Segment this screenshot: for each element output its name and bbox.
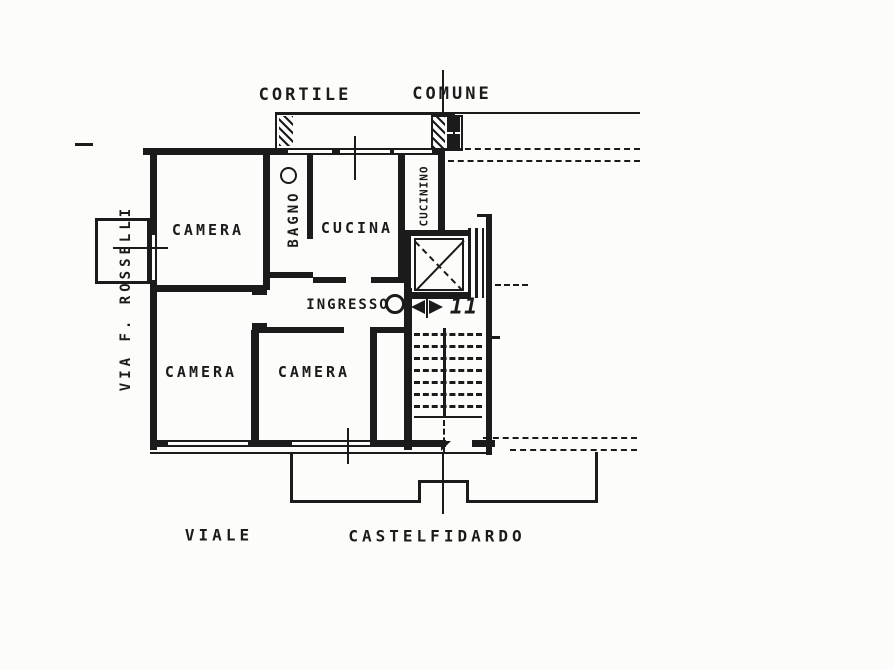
window-top-1 — [288, 148, 332, 155]
street-balcony-left-edge — [290, 452, 293, 503]
window-axis-tick-top — [354, 136, 356, 180]
stair-tread — [414, 369, 482, 372]
street-label-viale: VIALE — [185, 526, 253, 545]
window-top-3 — [394, 148, 432, 155]
window-axis-tick-bottom — [347, 428, 349, 464]
elevator-top-wall — [404, 230, 470, 236]
adjacent-wall-dashed-4 — [510, 449, 637, 451]
street-label-castelfidardo: CASTELFIDARDO — [348, 527, 525, 546]
window-bottom-1 — [168, 440, 248, 447]
room-label-cucinino: CUCININO — [418, 166, 431, 227]
street-label-via-rosselli: VIA F. ROSSELLI — [118, 205, 134, 391]
top-wall-lead-dash — [75, 143, 93, 146]
stair-tread — [414, 345, 482, 348]
wall-camera-bagno — [263, 155, 270, 290]
window-left — [150, 235, 157, 280]
wall-bagno-cucina — [307, 155, 313, 239]
stairwell-right-wall — [486, 215, 492, 455]
entry-arrow-right-icon — [429, 300, 443, 314]
flue-wall — [438, 150, 445, 236]
elevator-left-wall — [404, 230, 411, 299]
courtyard-label-comune: COMUNE — [412, 84, 491, 104]
chimney-hatch — [433, 117, 445, 148]
entry-arrow-left-icon — [411, 300, 425, 314]
room-label-bagno: BAGNO — [286, 190, 302, 247]
wall-camera-nw-bottom — [157, 285, 257, 292]
top-balcony — [275, 112, 455, 150]
stair-center-rail — [443, 328, 446, 418]
bottom-sill-line — [150, 452, 490, 454]
window-bottom-2 — [292, 440, 370, 447]
street-balcony-notch-left — [418, 482, 421, 503]
stairwell-wall-serif — [477, 214, 492, 217]
stair-center-dashed — [443, 420, 445, 452]
unit-number: 11 — [450, 295, 479, 320]
wall-cucina-bottom-a — [313, 277, 346, 283]
door-jamb-upper — [252, 285, 267, 295]
room-label-ingresso: INGRESSO — [306, 297, 389, 313]
courtyard-label-cortile: CORTILE — [259, 85, 352, 105]
exterior-wall-left — [150, 148, 157, 450]
entry-arrow-stem-icon — [426, 295, 428, 318]
stair-tread — [414, 405, 482, 408]
stair-tread — [414, 381, 482, 384]
elevator-right-pier — [468, 228, 484, 298]
bathroom-fixture-icon — [280, 167, 297, 184]
stair-tread — [414, 393, 482, 396]
wall-camera-sw-s — [251, 330, 259, 445]
section-line-bottom — [442, 452, 444, 514]
street-balcony-right-edge — [595, 452, 598, 503]
adjacent-wall-dashed-1 — [455, 148, 640, 150]
stair-tread — [414, 333, 482, 336]
room-label-camera-nw: CAMERA — [172, 221, 244, 239]
chimney-flue-dark-1 — [447, 117, 460, 132]
room-label-camera-sw: CAMERA — [165, 363, 237, 381]
stair-landing-line — [414, 416, 482, 418]
window-top-2 — [340, 148, 390, 155]
stairwell-wall-step — [486, 336, 500, 339]
stairwell-dash-right — [495, 284, 528, 286]
chimney-flue-dark-2 — [447, 134, 460, 148]
adjacent-wall-dashed-2 — [448, 160, 640, 162]
wall-corridor-bottom-a — [264, 327, 344, 333]
adjacent-wall-dashed-3 — [483, 437, 637, 439]
top-boundary-line — [455, 112, 640, 114]
street-balcony-bottom-left — [290, 500, 421, 503]
stair-tread — [414, 357, 482, 360]
room-label-cucina: CUCINA — [321, 219, 393, 237]
wall-cucina-bottom-b — [371, 277, 405, 283]
street-balcony-bottom-right — [466, 500, 598, 503]
wall-cucina-cucinino — [398, 155, 405, 283]
street-balcony-notch-top — [418, 480, 469, 483]
top-balcony-hatch — [279, 116, 293, 146]
wall-camera-s-right — [370, 330, 377, 442]
room-label-camera-s: CAMERA — [278, 363, 350, 381]
floor-plan: CORTILE COMUNE — [0, 0, 893, 670]
wall-bagno-bottom — [268, 272, 313, 278]
